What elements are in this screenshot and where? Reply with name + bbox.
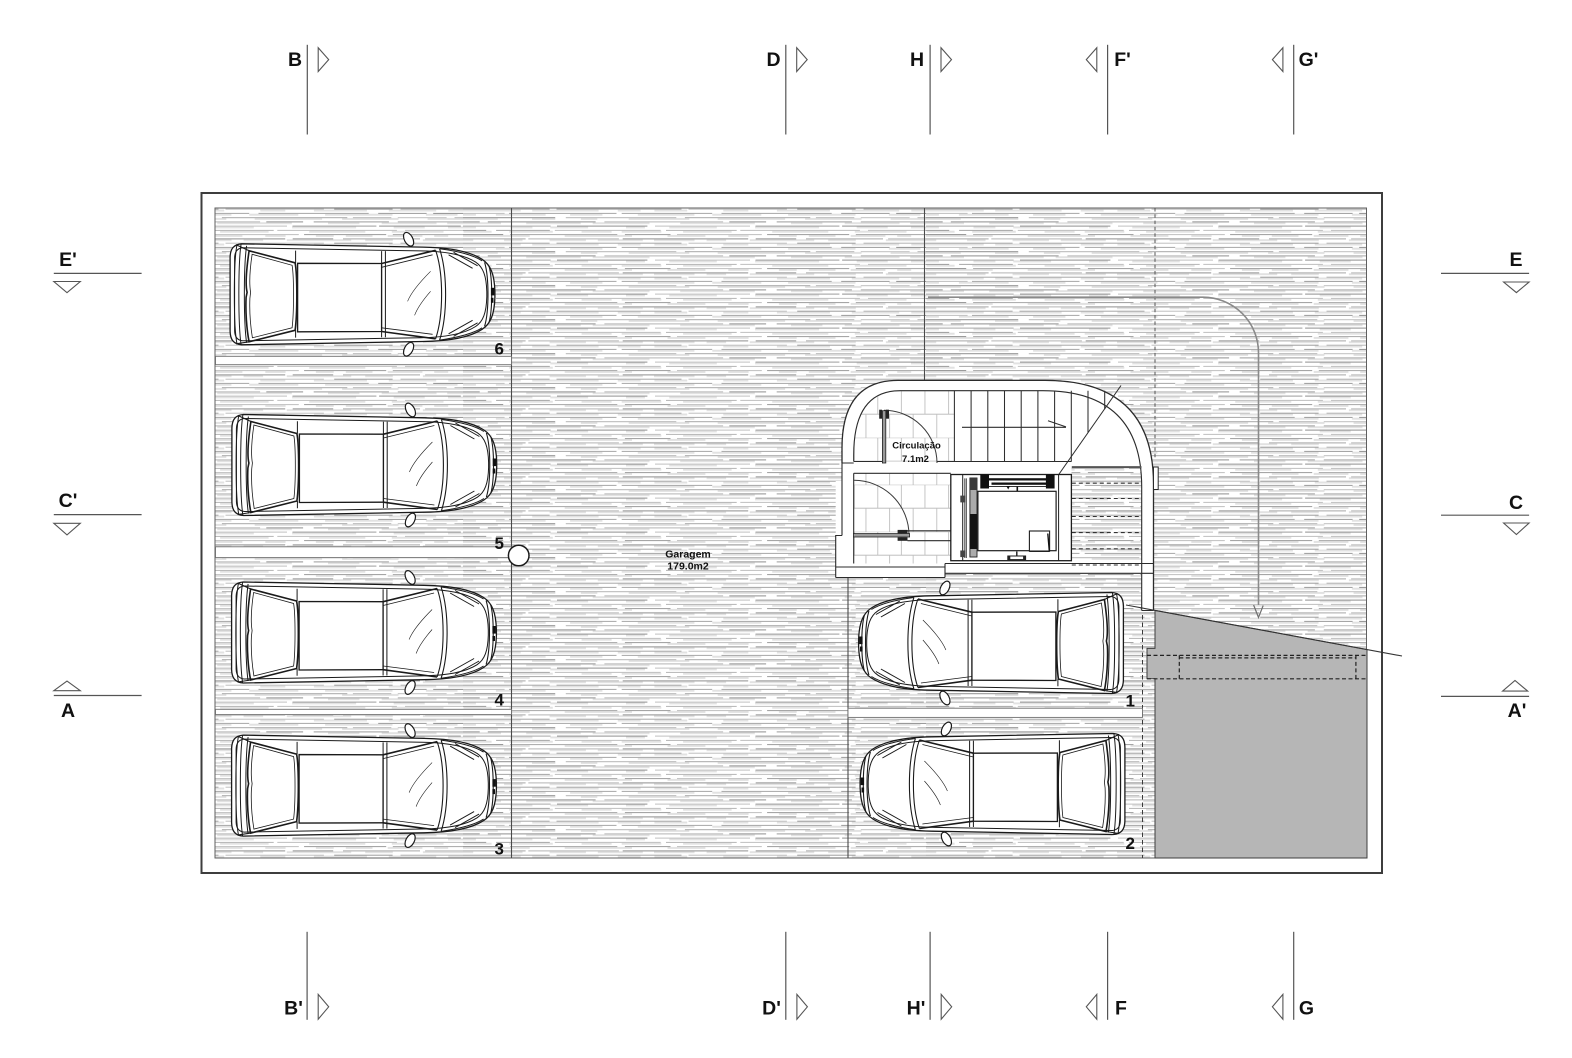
svg-text:F': F' [1114,49,1131,71]
svg-text:G: G [1299,998,1314,1020]
svg-text:3: 3 [495,840,504,859]
svg-text:5: 5 [495,534,504,553]
svg-text:E: E [1509,249,1522,271]
svg-text:4: 4 [495,691,505,710]
svg-text:Garagem: Garagem [665,549,711,561]
svg-text:2: 2 [1126,834,1135,853]
svg-text:Circulação: Circulação [892,441,941,452]
svg-text:C': C' [59,490,78,512]
svg-text:H': H' [907,998,926,1020]
svg-text:C: C [1509,492,1523,514]
svg-text:6: 6 [495,340,504,359]
svg-text:D': D' [762,998,781,1020]
svg-text:A: A [61,700,75,722]
svg-text:A': A' [1508,700,1527,722]
svg-text:D: D [766,49,780,71]
svg-text:B': B' [284,998,303,1020]
svg-text:B: B [288,49,302,71]
svg-text:1: 1 [1126,692,1135,711]
svg-text:F: F [1115,998,1127,1020]
svg-text:179.0m2: 179.0m2 [667,561,709,573]
svg-text:7.1m2: 7.1m2 [902,454,929,465]
svg-text:G': G' [1299,49,1319,71]
svg-text:H: H [910,49,924,71]
svg-text:E': E' [59,249,77,271]
